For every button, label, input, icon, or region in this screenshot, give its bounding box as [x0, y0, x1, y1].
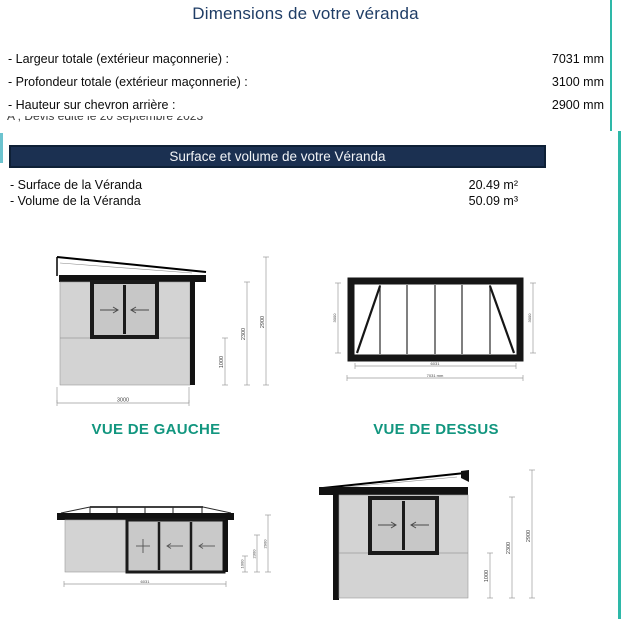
- dimension-label: - Hauteur sur chevron arrière :: [8, 98, 175, 112]
- corner-post: [190, 275, 195, 385]
- metric-row: - Surface de la Véranda 20.49 m²: [10, 178, 518, 192]
- metric-label: - Surface de la Véranda: [10, 178, 142, 192]
- top-view-drawing: 3000 3000 6031 7031 mm: [330, 258, 542, 385]
- dimension-label: - Largeur totale (extérieur maçonnerie) …: [8, 52, 229, 66]
- dim-label-width-inner: 6031: [431, 361, 441, 366]
- dimension-value: 3100 mm: [552, 75, 604, 89]
- dim-label-width-outer: 7031 mm: [427, 373, 444, 378]
- left-view-caption: VUE DE GAUCHE: [40, 421, 272, 438]
- page-title: Dimensions de votre véranda: [0, 4, 611, 24]
- dim-label-2900: 2900: [263, 539, 268, 549]
- dim-label-depth-left: 3000: [332, 313, 337, 323]
- metric-value: 50.09 m³: [469, 194, 518, 208]
- dimension-value: 2900 mm: [552, 98, 604, 112]
- dim-label-1000: 1000: [240, 559, 245, 569]
- dimension-row: - Largeur totale (extérieur maçonnerie) …: [8, 52, 604, 66]
- page-border-left-sliver: [0, 133, 3, 163]
- dim-label-2900: 2900: [260, 316, 266, 328]
- corner-post: [333, 487, 339, 600]
- clipped-devis-note: A , Devis édité le 20 septembre 2023: [7, 116, 427, 127]
- dim-label-1000: 1000: [219, 356, 225, 368]
- top-view-caption: VUE DE DESSUS: [330, 421, 542, 438]
- dimension-label: - Profondeur totale (extérieur maçonneri…: [8, 75, 248, 89]
- page-border-bottom-right: [618, 131, 621, 619]
- dim-label-2300: 2300: [241, 328, 247, 340]
- section-banner: Surface et volume de votre Véranda: [9, 145, 546, 168]
- dim-label-2300: 2300: [252, 549, 257, 559]
- dimension-row: - Hauteur sur chevron arrière : 2900 mm: [8, 98, 604, 112]
- dimension-value: 7031 mm: [552, 52, 604, 66]
- metric-value: 20.49 m²: [469, 178, 518, 192]
- dim-label-2900: 2900: [526, 530, 532, 542]
- metric-label: - Volume de la Véranda: [10, 194, 141, 208]
- document-page: Dimensions de votre véranda - Largeur to…: [0, 0, 623, 619]
- dim-label-depth-right: 3000: [527, 313, 532, 323]
- section-banner-title: Surface et volume de votre Véranda: [169, 149, 385, 164]
- left-view-drawing: 1000 2300 2900 3000: [40, 250, 272, 410]
- dim-label-2300: 2300: [506, 542, 512, 554]
- dim-label-1000: 1000: [484, 570, 490, 582]
- dim-label-3000: 3000: [117, 398, 129, 404]
- front-view-drawing: 6031 1000 2300 2900: [50, 494, 282, 598]
- corner-post: [223, 520, 228, 572]
- metric-row: - Volume de la Véranda 50.09 m³: [10, 194, 518, 208]
- roof-band: [319, 487, 468, 495]
- right-view-drawing: 1000 2300 2900: [315, 464, 547, 619]
- dimension-row: - Profondeur totale (extérieur maçonneri…: [8, 75, 604, 89]
- dim-label-width: 6031: [141, 579, 151, 584]
